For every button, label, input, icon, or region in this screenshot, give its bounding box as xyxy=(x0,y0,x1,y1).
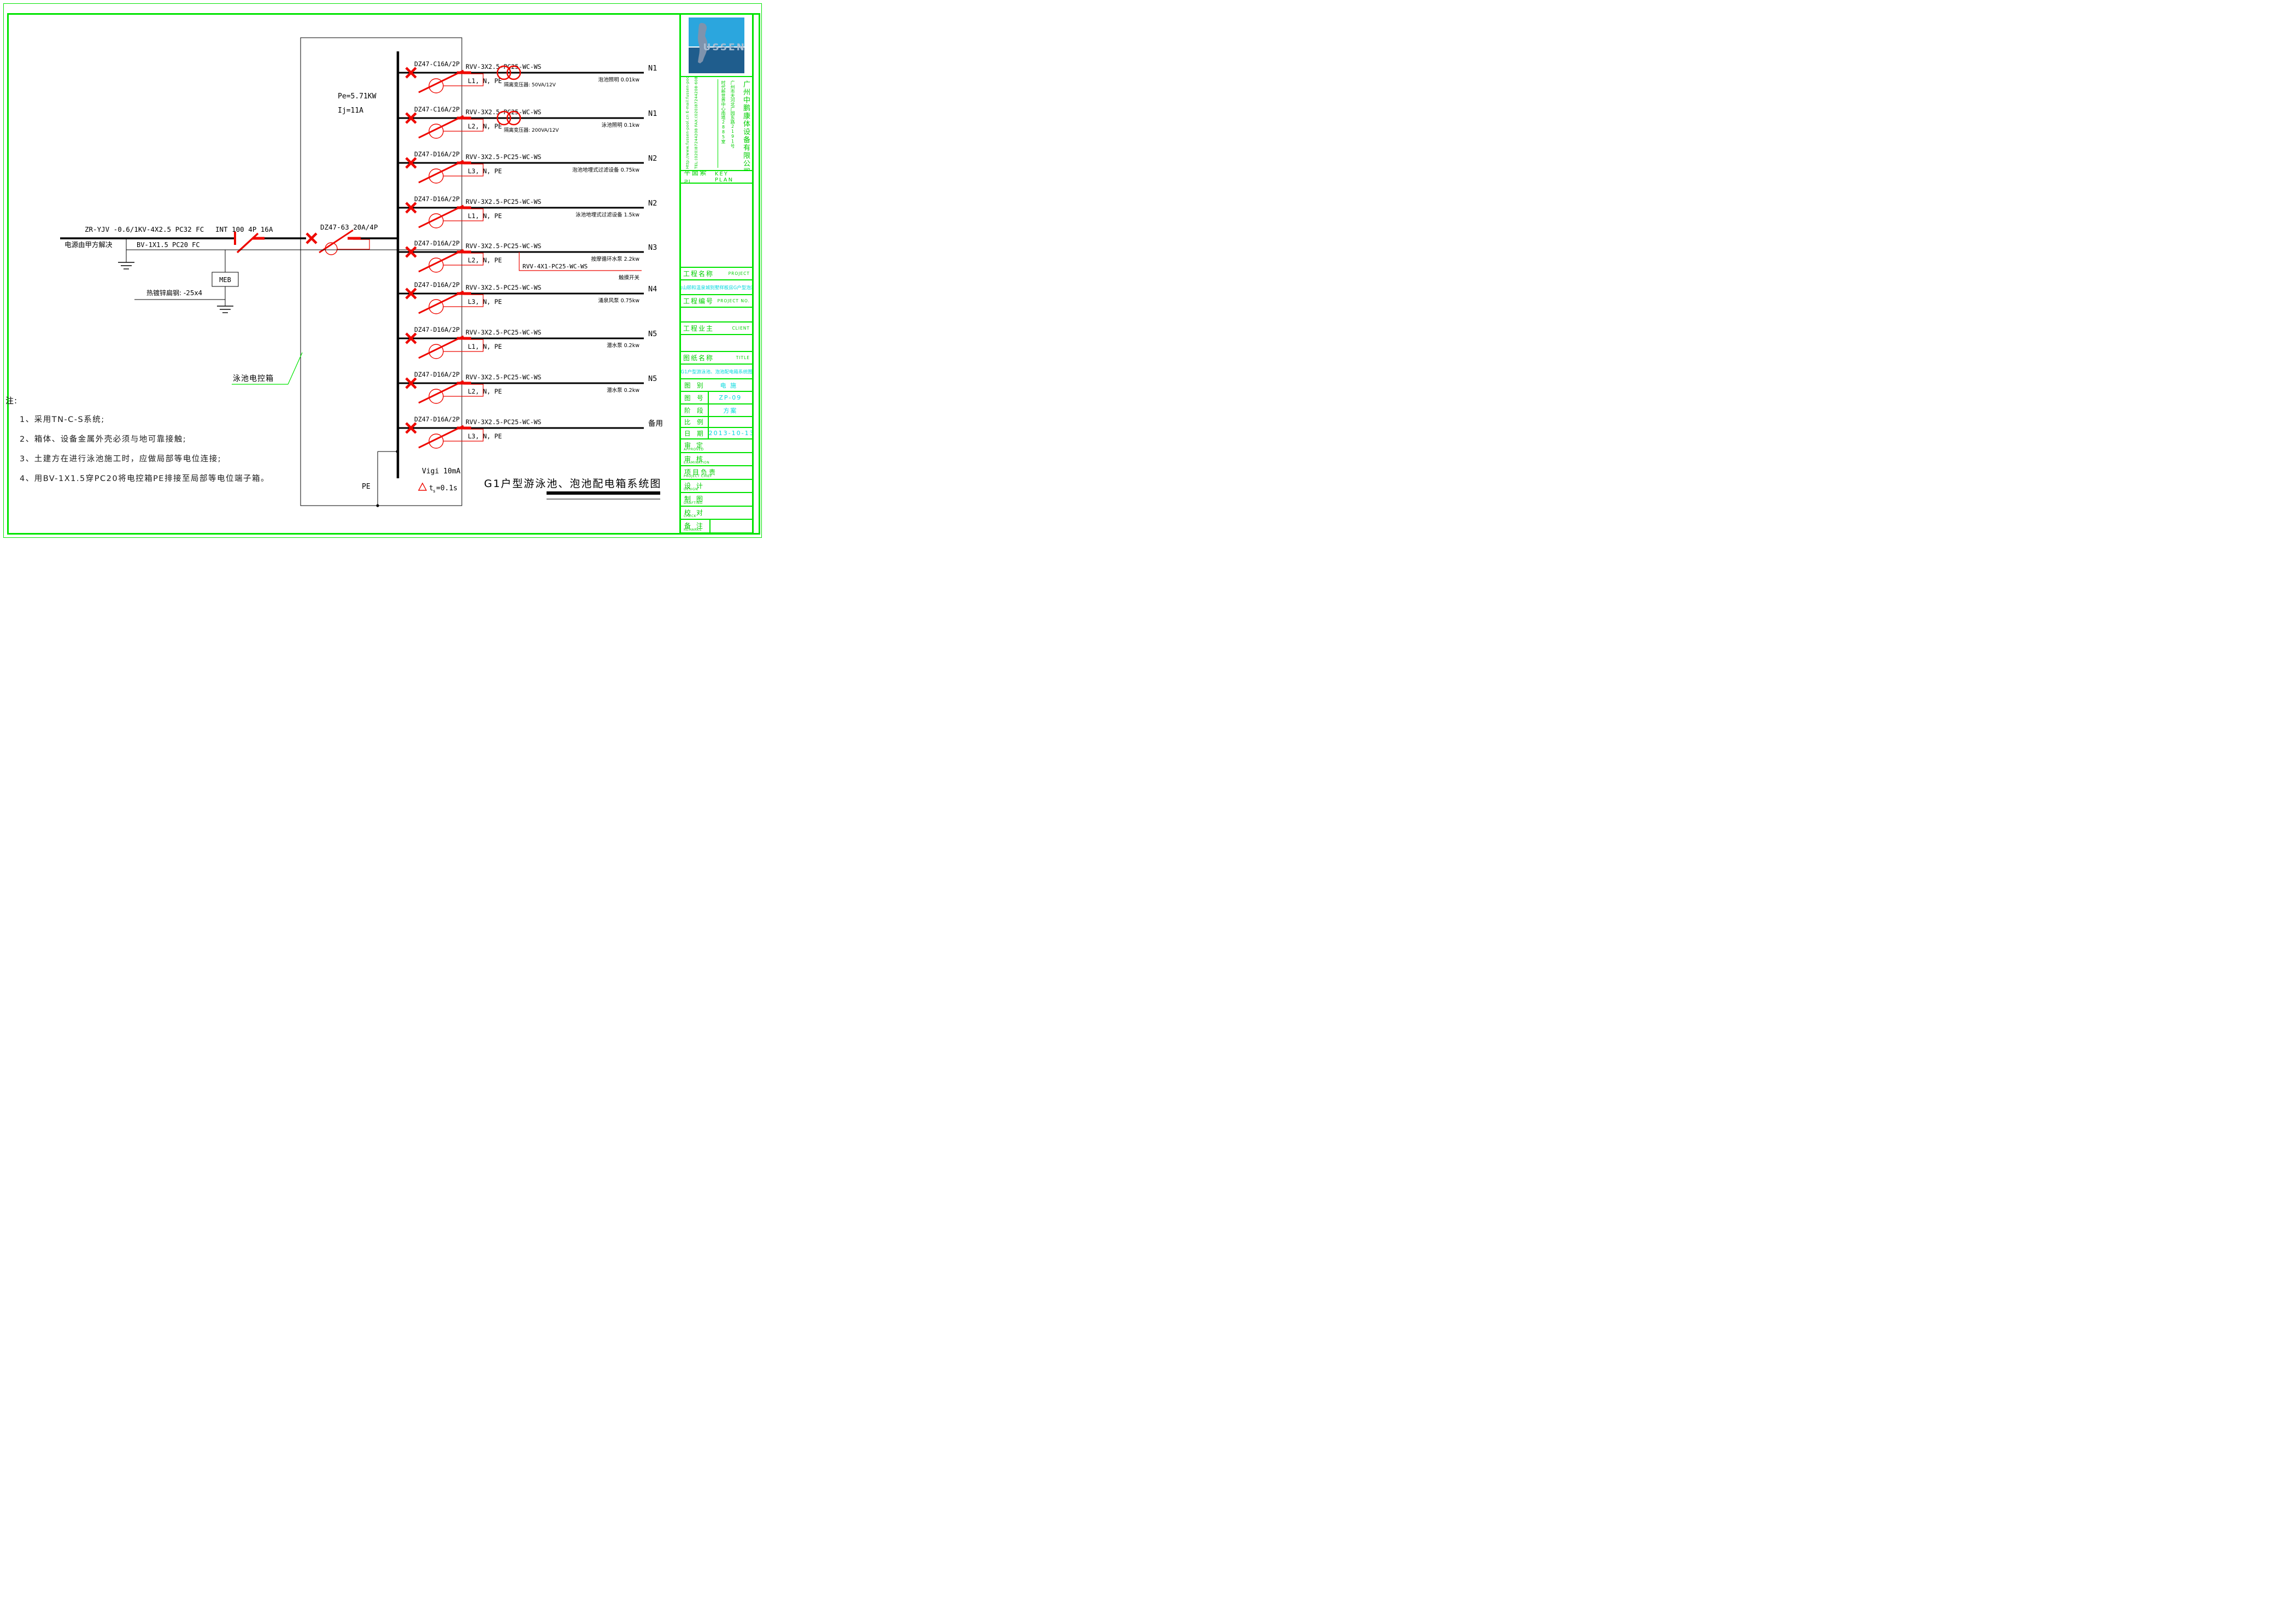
vigi-annotation: Vigi 10mA t s =0.1s xyxy=(419,467,461,494)
key-plan-area xyxy=(681,184,752,268)
branch-cable-label: RVV-3X2.5-PC25-WC-WS xyxy=(466,242,542,250)
branch-breaker-label: DZ47-D16A/2P xyxy=(414,239,460,247)
branch-circuit-label: N2 xyxy=(648,154,657,163)
company-contact-tel-fax: TEL:(020)87244208 FAX:(020)87244208-608 … xyxy=(694,77,698,169)
field-row-4: 比 例 xyxy=(681,417,752,428)
trip-time-value: =0.1s xyxy=(436,484,457,493)
note-item: 3、土建方在进行泳池施工时，应做局部等电位连接; xyxy=(20,453,221,464)
branch-load-label: 潜水泵 0.2kw xyxy=(607,342,639,349)
sheet-title-value-row: G1户型游泳池、泡池配电箱系统图 xyxy=(681,365,752,379)
logo-row: USSEN xyxy=(681,15,752,77)
company-address-1: 广州市天河北广园东路2191号 xyxy=(730,80,736,148)
breaker-blade-icon xyxy=(419,426,463,448)
field-row-2: 图 号ZP-09 xyxy=(681,392,752,404)
company-address-2: 时代新世界中心南塔2885室 xyxy=(720,80,726,144)
vigi-label: Vigi 10mA xyxy=(422,467,461,476)
field-label: 阶 段 xyxy=(681,406,706,415)
note-item: 1、采用TN-C-S系统; xyxy=(20,413,105,425)
branch-load-label: 潜水泵 0.2kw xyxy=(607,387,639,394)
breaker-blade-icon xyxy=(419,116,463,138)
panel-power-label: Pe=5.71KW xyxy=(338,92,377,101)
branch-breaker-label: DZ47-D16A/2P xyxy=(414,281,460,289)
field-row-5: 日 期2013-10-13 xyxy=(681,428,752,439)
branch-phases-label: L3, N, PE xyxy=(468,298,502,306)
diagram-title: G1户型游泳池、泡池配电箱系统图 xyxy=(484,478,662,490)
sign-label-en: APPROVED xyxy=(684,448,704,452)
branch-breaker-label: DZ47-D16A/2P xyxy=(414,150,460,158)
branch-circuit-2: DZ47-C16A/2PRVV-3X2.5-PC25-WC-WSL2, N, P… xyxy=(399,105,657,138)
client-label-en: CLIENT xyxy=(732,326,750,331)
trip-time-sub: s xyxy=(433,489,436,494)
pe-cable-label: BV-1X1.5 PC20 FC xyxy=(137,241,200,249)
branch-circuits: DZ47-C16A/2PRVV-3X2.5-PC25-WC-WSL1, N, P… xyxy=(399,60,663,448)
field-value: ZP-09 xyxy=(709,394,752,401)
branch-cable-label: RVV-3X2.5-PC25-WC-WS xyxy=(466,373,542,381)
sign-row-7: 备 注REMARKS xyxy=(681,520,752,532)
sign-label-en: CHECK xyxy=(684,514,696,518)
delta-triangle-icon xyxy=(419,483,426,490)
sign-row-2: 审 核EXAMINATION xyxy=(681,453,752,467)
pe-node-dot xyxy=(376,504,379,507)
company-info-row: 广州中鹏康体设备有限公司 广州市天河北广园东路2191号 时代新世界中心南塔28… xyxy=(681,77,752,171)
sign-divider xyxy=(709,520,710,532)
branch-phases-label: L3, N, PE xyxy=(468,432,502,440)
pe-label: PE xyxy=(362,483,371,491)
project-label-cn: 工程名称 xyxy=(683,269,714,278)
field-row-1: 图 别电 施 xyxy=(681,379,752,392)
branch-circuit-8: DZ47-D16A/2PRVV-3X2.5-PC25-WC-WSL2, N, P… xyxy=(399,371,657,403)
company-logo: USSEN xyxy=(689,17,744,73)
feeder-cable-label: ZR-YJV -0.6/1KV-4X2.5 PC32 FC xyxy=(85,225,204,233)
key-plan-label-cn: 平面索引 xyxy=(684,171,715,184)
project-label-en: PROJECT xyxy=(729,271,750,276)
key-plan-label-en: KEY PLAN xyxy=(715,171,749,183)
branch-breaker-label: DZ47-D16A/2P xyxy=(414,326,460,333)
main-breaker-rcd-box-icon xyxy=(337,239,369,249)
field-label: 图 别 xyxy=(681,381,706,390)
branch-circuit-label: 备用 xyxy=(648,419,663,428)
branch-phases-label: L1, N, PE xyxy=(468,212,502,220)
company-contact-web-email: Http://www.fussen-pool.cn E-mail:fussen-… xyxy=(685,77,690,169)
key-plan-row: 平面索引 KEY PLAN xyxy=(681,171,752,184)
branch-circuit-5: DZ47-D16A/2PRVV-3X2.5-PC25-WC-WSL2, N, P… xyxy=(399,239,657,281)
branch-circuit-label: N3 xyxy=(648,243,657,252)
field-value: 电 施 xyxy=(706,381,752,390)
leader-diagonal xyxy=(288,353,302,384)
branch-circuit-label: N1 xyxy=(648,109,657,118)
panel-name-callout: 泳池电控箱 xyxy=(232,353,302,384)
note-item: 4、用BV-1X1.5穿PC20将电控箱PE排接至局部等电位端子箱。 xyxy=(20,472,269,484)
title-block: USSEN 广州中鹏康体设备有限公司 广州市天河北广园东路2191号 时代新世界… xyxy=(679,13,754,534)
notes-heading: 注: xyxy=(5,395,17,406)
breaker-blade-icon xyxy=(419,291,463,313)
sign-label-en: DRAFTING xyxy=(684,501,703,505)
sheet-title-label-cn: 图纸名称 xyxy=(683,353,714,362)
field-value: 方案 xyxy=(709,406,752,415)
diagram-title-group: G1户型游泳池、泡池配电箱系统图 xyxy=(484,478,662,499)
sign-label-en: REMARKS xyxy=(684,528,702,532)
branch-circuit-label: N4 xyxy=(648,285,657,294)
earth-strip-label: 热镀锌扁钢: -25x4 xyxy=(146,289,202,297)
sign-row-1: 审 定APPROVED xyxy=(681,439,752,453)
aux-load-label: 触摸开关 xyxy=(619,274,640,281)
incoming-feeder: ZR-YJV -0.6/1KV-4X2.5 PC32 FC 电源由甲方解决 IN… xyxy=(60,223,462,313)
branch-breaker-label: DZ47-D16A/2P xyxy=(414,195,460,203)
note-item: 2、箱体、设备金属外壳必须与地可靠接触; xyxy=(20,433,186,444)
field-value: 2013-10-13 xyxy=(709,430,752,437)
field-label: 日 期 xyxy=(681,429,706,438)
transformer-label: 隔离变压器: 200VA/12V xyxy=(504,127,559,133)
branch-load-label: 泡池地埋式过滤设备 0.75kw xyxy=(572,167,639,173)
client-header-row: 工程业主 CLIENT xyxy=(681,323,752,335)
branch-circuit-label: N1 xyxy=(648,64,657,73)
branch-phases-label: L1, N, PE xyxy=(468,77,502,85)
sign-label-en: PROJECT CHIEF xyxy=(684,474,712,478)
field-row-3: 阶 段方案 xyxy=(681,404,752,417)
company-divider xyxy=(718,79,718,168)
branch-breaker-label: DZ47-D16A/2P xyxy=(414,415,460,423)
aux-cable-label: RVV-4X1-PC25-WC-WS xyxy=(522,263,588,270)
notes-block: 注: 1、采用TN-C-S系统; 2、箱体、设备金属外壳必须与地可靠接触; 3、… xyxy=(5,395,17,406)
isolator-label: INT 100 4P 16A xyxy=(215,225,273,233)
sheet-title-label-en: TITLE xyxy=(736,355,750,360)
breaker-blade-icon xyxy=(419,250,463,272)
branch-circuit-4: DZ47-D16A/2PRVV-3X2.5-PC25-WC-WSL1, N, P… xyxy=(399,195,657,228)
panel-pe-tap: PE xyxy=(362,450,399,507)
branch-circuit-6: DZ47-D16A/2PRVV-3X2.5-PC25-WC-WSL3, N, P… xyxy=(399,281,657,314)
client-label-cn: 工程业主 xyxy=(683,324,714,333)
branch-cable-label: RVV-3X2.5-PC25-WC-WS xyxy=(466,418,542,426)
branch-circuit-3: DZ47-D16A/2PRVV-3X2.5-PC25-WC-WSL3, N, P… xyxy=(399,150,657,183)
field-label: 比 例 xyxy=(681,418,706,426)
branch-cable-label: RVV-3X2.5-PC25-WC-WS xyxy=(466,329,542,336)
branch-phases-label: L3, N, PE xyxy=(468,167,502,175)
project-no-header-row: 工程编号 PROJECT NO. xyxy=(681,295,752,308)
branch-load-label: 泳池地埋式过滤设备 1.5kw xyxy=(576,212,639,218)
branch-load-label: 泳池照明 0.1kw xyxy=(602,122,640,128)
project-no-label-cn: 工程编号 xyxy=(683,296,714,306)
branch-phases-label: L2, N, PE xyxy=(468,388,502,395)
title-underline-thick xyxy=(547,491,660,495)
branch-circuit-1: DZ47-C16A/2PRVV-3X2.5-PC25-WC-WSL1, N, P… xyxy=(399,60,657,93)
sign-row-6: 校 对CHECK xyxy=(681,507,752,520)
branch-load-label: 泡池照明 0.01kw xyxy=(598,77,640,83)
sheet-title-header-row: 图纸名称 TITLE xyxy=(681,352,752,365)
project-header-row: 工程名称 PROJECT xyxy=(681,268,752,280)
branch-load-label: 按摩循环水泵 2.2kw xyxy=(591,256,640,262)
branch-phases-label: L2, N, PE xyxy=(468,122,502,130)
panel-name-label: 泳池电控箱 xyxy=(233,374,274,383)
branch-circuit-7: DZ47-D16A/2PRVV-3X2.5-PC25-WC-WSL1, N, P… xyxy=(399,326,657,359)
client-value-row xyxy=(681,335,752,352)
drawing-sheet: ZR-YJV -0.6/1KV-4X2.5 PC32 FC 电源由甲方解决 IN… xyxy=(0,0,765,541)
branch-breaker-label: DZ47-C16A/2P xyxy=(414,60,460,68)
branch-cable-label: RVV-3X2.5-PC25-WC-WS xyxy=(466,284,542,291)
sign-label-en: EXAMINATION xyxy=(684,461,709,465)
logo-text: USSEN xyxy=(703,42,744,53)
branch-circuit-label: N5 xyxy=(648,330,657,338)
breaker-blade-icon xyxy=(419,336,463,358)
field-label: 图 号 xyxy=(681,394,706,402)
breaker-blade-icon xyxy=(419,206,463,227)
field-divider xyxy=(708,417,709,427)
sign-row-5: 制 图DRAFTING xyxy=(681,493,752,507)
sign-row-3: 项目负责PROJECT CHIEF xyxy=(681,466,752,480)
project-value-row: 台山颐和温泉城别墅样板房G户型泡池 xyxy=(681,280,752,295)
branch-load-label: 涌泉风泵 0.75kw xyxy=(598,297,640,304)
branch-circuit-label: N5 xyxy=(648,374,657,383)
panel-current-label: Ij=11A xyxy=(338,107,363,115)
breaker-blade-icon xyxy=(419,161,463,183)
branch-circuit-9: DZ47-D16A/2PRVV-3X2.5-PC25-WC-WSL3, N, P… xyxy=(399,415,663,448)
branch-breaker-label: DZ47-D16A/2P xyxy=(414,371,460,378)
breaker-blade-icon xyxy=(419,381,463,403)
branch-cable-label: RVV-3X2.5-PC25-WC-WS xyxy=(466,153,542,161)
source-note-label: 电源由甲方解决 xyxy=(64,241,113,249)
branch-circuit-label: N2 xyxy=(648,199,657,208)
branch-phases-label: L1, N, PE xyxy=(468,343,502,350)
project-no-label-en: PROJECT NO. xyxy=(718,298,750,303)
meb-label: MEB xyxy=(219,276,231,284)
company-name: 广州中鹏康体设备有限公司 xyxy=(741,80,751,171)
breaker-blade-icon xyxy=(419,71,463,92)
branch-phases-label: L2, N, PE xyxy=(468,256,502,264)
transformer-label: 隔离变压器: 50VA/12V xyxy=(504,81,556,88)
sign-label-en: DESIGN xyxy=(684,488,698,491)
project-no-value-row xyxy=(681,308,752,323)
main-breaker-label: DZ47-63 20A/4P xyxy=(320,223,378,231)
branch-cable-label: RVV-3X2.5-PC25-WC-WS xyxy=(466,198,542,206)
sign-row-4: 设 计DESIGN xyxy=(681,480,752,494)
branch-breaker-label: DZ47-C16A/2P xyxy=(414,105,460,113)
